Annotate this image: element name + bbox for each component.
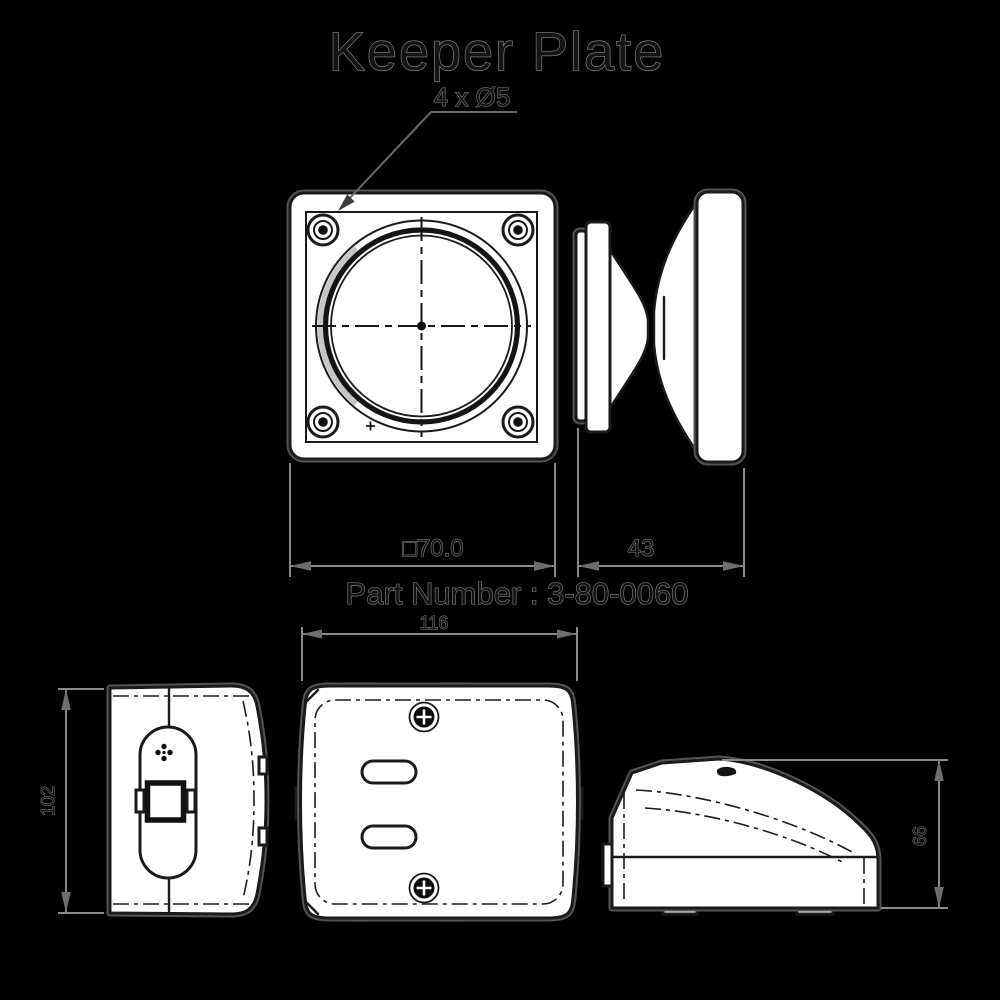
hole-callout-text: 4 x Ø5 xyxy=(434,82,511,112)
phillips-screw-bottom xyxy=(410,874,439,903)
dim-plate-width-text: □70.0 xyxy=(402,535,463,562)
mounting-hole-top-right xyxy=(503,215,533,245)
slot-lower xyxy=(362,826,416,848)
aperture-tab-left xyxy=(136,790,144,812)
mounting-hole-bottom-left xyxy=(308,407,338,437)
engineering-drawing: Keeper Plate 4 x Ø5 xyxy=(0,0,1000,1000)
dim-knob-depth-text: 43 xyxy=(628,535,655,562)
part-number: Part Number : 3-80-0060 xyxy=(346,576,689,611)
dim-body-width-text: 116 xyxy=(420,613,449,633)
dim-body-height-text: 102 xyxy=(38,786,58,816)
center-mark xyxy=(417,322,426,331)
phillips-screw-top xyxy=(410,703,439,732)
plate-edge xyxy=(586,222,610,432)
mounting-hole-top-left xyxy=(308,215,338,245)
mounting-hole-bottom-right xyxy=(503,407,533,437)
edge-nub-upper xyxy=(259,757,267,774)
square-aperture xyxy=(148,783,184,820)
slot-upper xyxy=(362,761,416,783)
aperture-tab-right xyxy=(187,790,195,812)
dim-body-side-height-text: 66 xyxy=(910,826,930,846)
knob-body xyxy=(697,192,743,462)
profile-side-tab xyxy=(603,844,612,886)
body-front-outline xyxy=(301,686,578,918)
drawing-title: Keeper Plate xyxy=(329,22,665,82)
body-side-view xyxy=(110,686,267,914)
edge-nub-lower xyxy=(259,828,267,845)
